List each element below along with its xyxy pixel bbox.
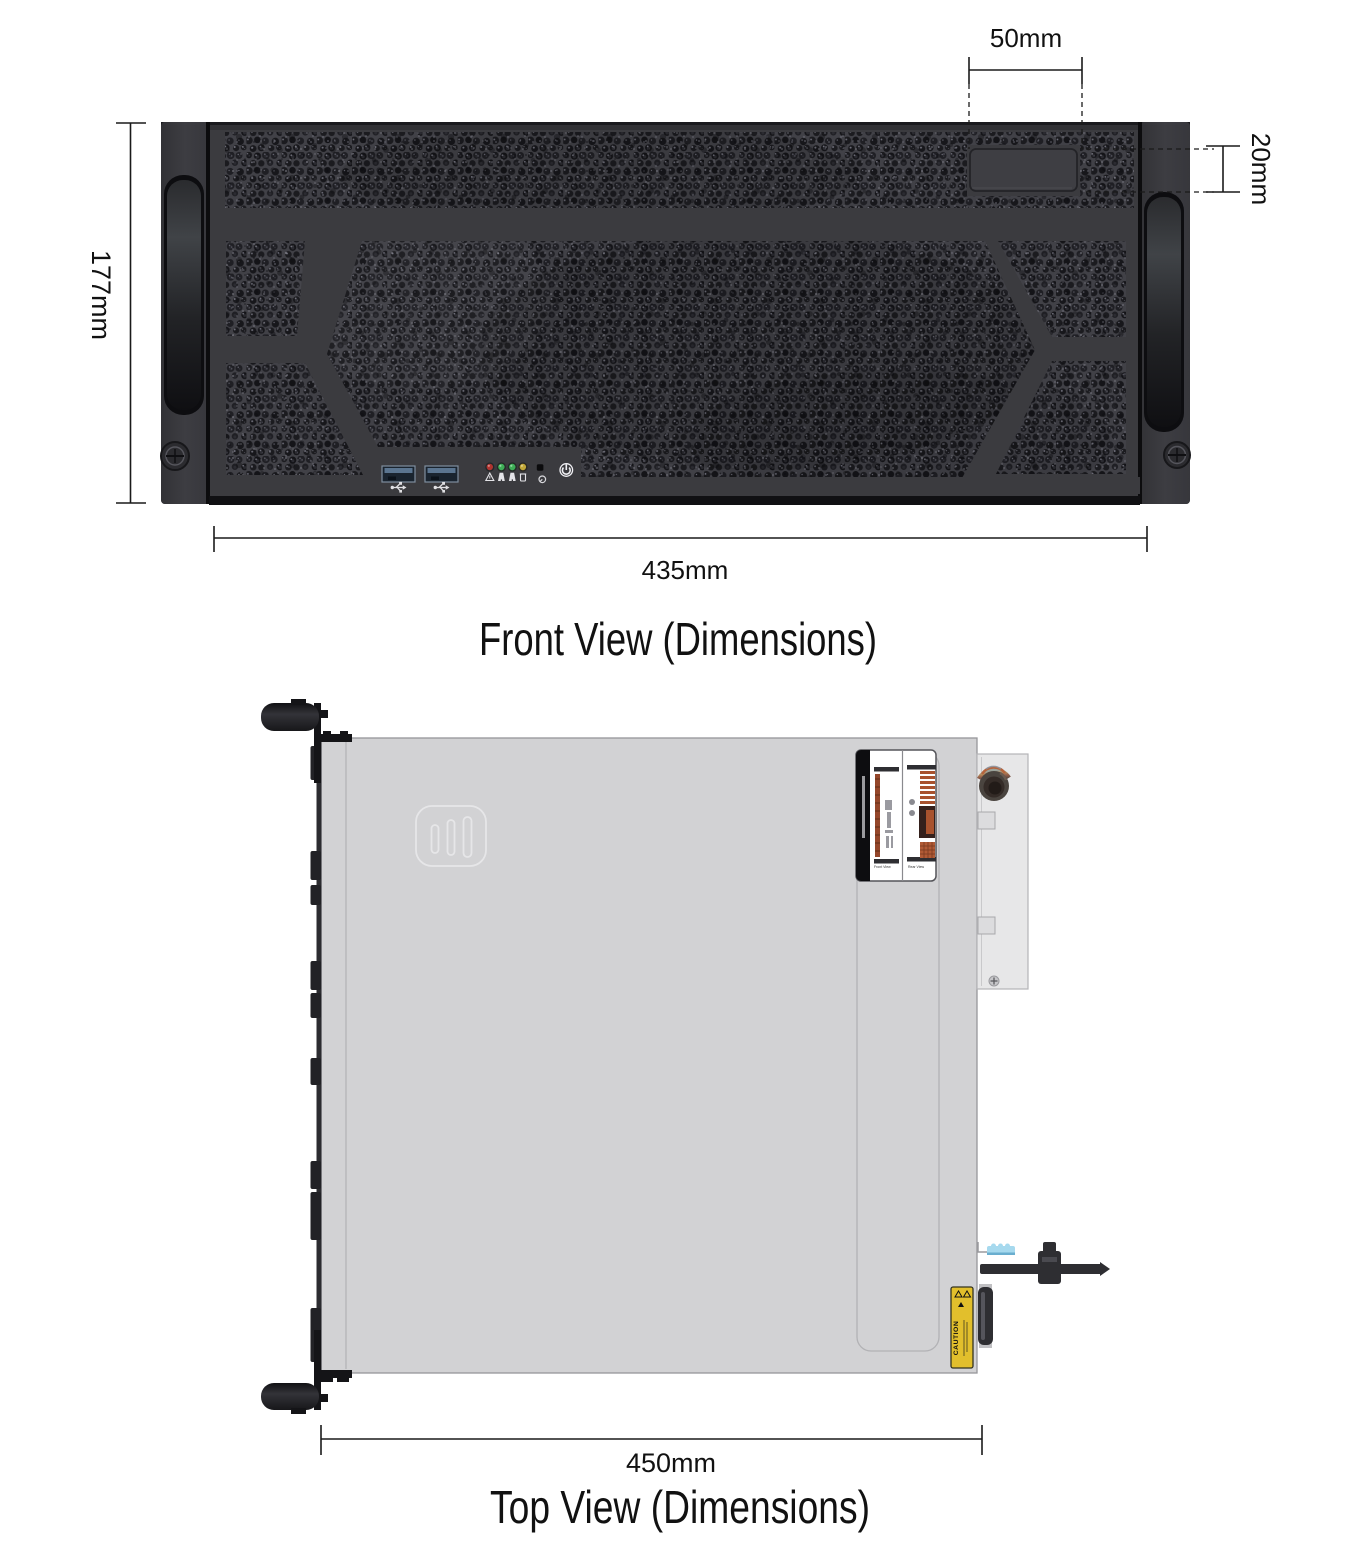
svg-text:177mm: 177mm [86, 250, 116, 340]
svg-text:50mm: 50mm [990, 23, 1062, 53]
svg-text:435mm: 435mm [642, 555, 729, 585]
svg-text:20mm: 20mm [1246, 133, 1276, 205]
svg-text:Front View (Dimensions): Front View (Dimensions) [479, 613, 877, 665]
svg-text:Rear View: Rear View [908, 865, 925, 869]
svg-text:CAUTION: CAUTION [953, 1321, 960, 1355]
svg-text:450mm: 450mm [626, 1448, 716, 1478]
svg-text:Front View: Front View [874, 865, 891, 869]
svg-text:Top View (Dimensions): Top View (Dimensions) [490, 1481, 870, 1533]
